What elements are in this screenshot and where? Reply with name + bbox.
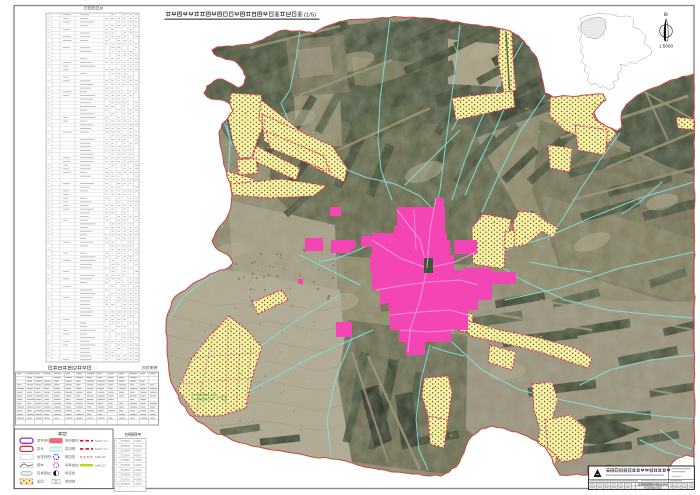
svg-text:443051: 443051 (134, 441, 142, 443)
svg-text:443045: 443045 (134, 479, 142, 481)
svg-text:443024: 443024 (134, 451, 142, 453)
svg-text:5159894: 5159894 (121, 475, 131, 477)
svg-text:443070: 443070 (134, 455, 142, 457)
svg-text:5159835: 5159835 (121, 446, 131, 448)
svg-text:443074: 443074 (134, 475, 142, 477)
svg-text:1:5000: 1:5000 (659, 44, 673, 49)
svg-text:X=5159854.104: X=5159854.104 (192, 393, 216, 397)
svg-text:(1/5): (1/5) (304, 13, 316, 19)
svg-text:Sc10/T 1.0: Sc10/T 1.0 (95, 439, 108, 443)
svg-text:5159834: 5159834 (121, 451, 131, 453)
svg-text:5x88 110: 5x88 110 (95, 455, 106, 459)
svg-text:443073: 443073 (134, 484, 142, 486)
svg-text:5159881: 5159881 (121, 470, 131, 472)
svg-text:5159840: 5159840 (121, 465, 131, 467)
svg-text:5159813: 5159813 (121, 484, 131, 486)
svg-text:Sc10/T 1.0: Sc10/T 1.0 (95, 447, 108, 451)
svg-text:443028: 443028 (134, 465, 142, 467)
svg-text:443040: 443040 (134, 446, 142, 448)
svg-text:5159881: 5159881 (121, 460, 131, 462)
svg-text:5159842: 5159842 (121, 441, 131, 443)
svg-text:Y=443095.700: Y=443095.700 (192, 398, 214, 402)
svg-text:5x88 110: 5x88 110 (95, 463, 106, 467)
svg-text:443090: 443090 (134, 470, 142, 472)
svg-text:5159810: 5159810 (121, 479, 131, 481)
svg-text:5159847: 5159847 (121, 455, 131, 457)
svg-text:443088: 443088 (134, 460, 142, 462)
